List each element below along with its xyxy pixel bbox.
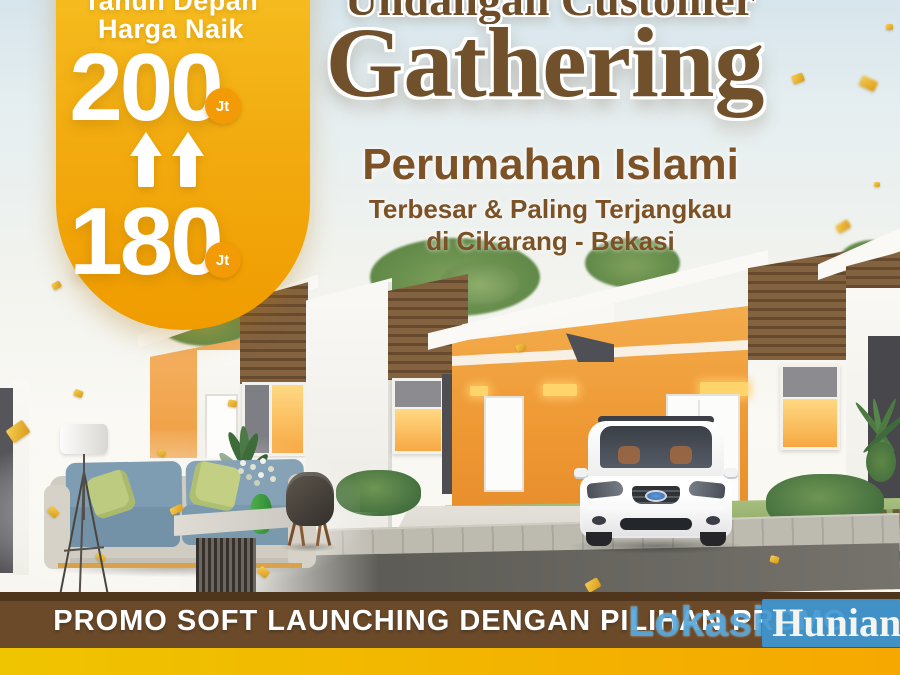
hyundai-badge-icon (645, 490, 667, 502)
future-price-row: 200 Jt (56, 44, 310, 132)
up-arrow-icon (130, 132, 162, 188)
confetti-icon (73, 389, 84, 399)
car-wheel (586, 532, 612, 546)
price-up-arrows (56, 132, 310, 188)
subheadline-title: Perumahan Islami (318, 140, 783, 190)
bottom-accent-strip (0, 648, 900, 675)
confetti-icon (835, 219, 852, 234)
subheadline-tagline2: di Cikarang - Bekasi (318, 226, 783, 257)
future-price-value: 200 (69, 44, 220, 132)
flowers-icon (240, 460, 246, 466)
window-glow-pane (783, 399, 837, 447)
window-shade (783, 367, 837, 397)
confetti-icon (858, 75, 878, 92)
porch-light (543, 384, 577, 396)
armchair (280, 468, 340, 553)
current-price-value: 180 (69, 198, 220, 286)
white-suv-car (580, 416, 732, 550)
headline-line2: Gathering (300, 8, 790, 118)
confetti-icon (227, 399, 237, 407)
house-window (392, 378, 444, 454)
house-window (780, 364, 840, 450)
watermark-word2: Hunian (762, 599, 900, 647)
current-price-row: 180 Jt (56, 198, 310, 286)
window-shade (395, 381, 441, 407)
chair-shell (286, 472, 334, 526)
car-wheel (700, 532, 726, 546)
car-windshield (600, 426, 712, 468)
promo-flyer-poster: Undangan Customer Gathering Perumahan Is… (0, 0, 900, 675)
car-air-intake (620, 518, 692, 530)
price-unit-badge: Jt (205, 88, 241, 124)
confetti-icon (791, 72, 805, 85)
confetti-icon (874, 182, 880, 187)
house-door (484, 396, 524, 492)
up-arrow-icon (172, 132, 204, 188)
table-base (196, 538, 256, 594)
car-seat (670, 446, 692, 464)
car-seat (618, 446, 640, 464)
lamp-shade (60, 424, 108, 454)
window-glow-pane (395, 409, 441, 451)
car-fog-light (592, 516, 606, 525)
floor-lamp (52, 420, 122, 592)
porch-light (470, 386, 488, 396)
watermark-word1: Lokasi (628, 598, 764, 647)
confetti-icon (886, 24, 893, 30)
subheadline-tagline1: Terbesar & Paling Terjangkau (318, 194, 783, 225)
lokasi-hunian-watermark: Lokasi Hunian (628, 598, 900, 647)
price-increase-badge: Tahun Depan Harga Naik 200 Jt 180 Jt (56, 0, 310, 330)
price-unit-badge: Jt (205, 242, 241, 278)
car-fog-light (706, 516, 720, 525)
